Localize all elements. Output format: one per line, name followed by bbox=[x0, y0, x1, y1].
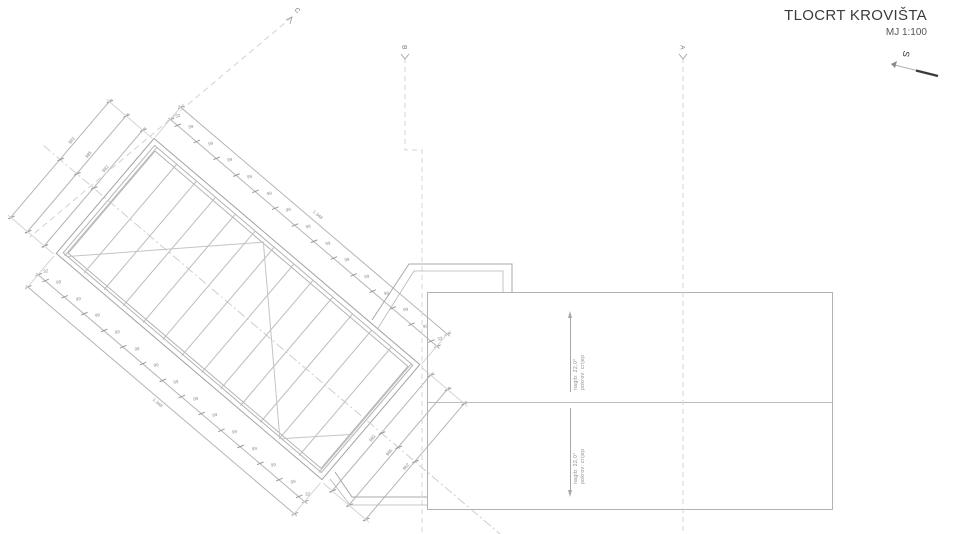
dim-seg-label: 99 bbox=[344, 257, 350, 262]
dim-tick-icon bbox=[35, 273, 42, 277]
dim-tick-icon bbox=[198, 411, 205, 415]
dim-tick-icon bbox=[349, 272, 356, 276]
dim-seg-label: 99 bbox=[114, 330, 120, 335]
dim-tick-icon bbox=[346, 503, 353, 507]
dim-seg-label: 32 bbox=[42, 269, 48, 274]
witness-line bbox=[25, 255, 54, 289]
witness-line bbox=[106, 98, 152, 138]
section-label-b: B bbox=[400, 45, 407, 49]
dim-seg-label: 99 bbox=[207, 141, 213, 146]
dim-tick-icon bbox=[178, 105, 185, 109]
dim-tick-icon bbox=[41, 244, 48, 248]
dim-tick-icon bbox=[237, 444, 244, 448]
dim-tick-icon bbox=[158, 378, 165, 382]
section-label-a: A bbox=[678, 45, 685, 49]
dim-tick-icon bbox=[139, 361, 146, 365]
dim-seg-label: 99 bbox=[305, 224, 311, 229]
dim-tick-icon bbox=[106, 100, 113, 104]
page-title: TLOCRT KROVIŠTA bbox=[784, 7, 927, 24]
dim-tick-icon bbox=[61, 295, 68, 299]
rotated-roof-outline: 3299999999999999999999999999321.34832999… bbox=[55, 137, 420, 480]
dim-tick-icon bbox=[363, 517, 370, 521]
dim-tick-icon bbox=[252, 189, 259, 193]
section-b-arrow-icon bbox=[401, 54, 409, 59]
section-a-arrow-icon bbox=[679, 54, 687, 59]
dim-tick-icon bbox=[295, 494, 302, 498]
dim-tick-icon bbox=[80, 311, 87, 315]
dim-tick-icon bbox=[217, 428, 224, 432]
dim-tick-icon bbox=[291, 223, 298, 227]
dim-seg-label: 99 bbox=[188, 124, 194, 129]
dim-seg-label: 99 bbox=[227, 158, 233, 163]
dim-tick-icon bbox=[25, 285, 32, 289]
dim-tick-icon bbox=[256, 461, 263, 465]
end-dim-label: 962 bbox=[68, 136, 76, 145]
dim-tick-icon bbox=[193, 139, 200, 143]
dim-tick-icon bbox=[213, 156, 220, 160]
dim-seg-label: 99 bbox=[270, 463, 276, 468]
right-roof-ridge-line bbox=[428, 402, 832, 403]
dim-seg-label: 99 bbox=[231, 429, 237, 434]
dim-seg-label: 99 bbox=[383, 291, 389, 296]
dim-tick-icon bbox=[291, 512, 298, 516]
end-dim-label: 985 bbox=[385, 448, 393, 457]
dim-seg-label: 32 bbox=[304, 492, 310, 497]
dim-seg-label: 99 bbox=[212, 413, 218, 418]
dim-tick-icon bbox=[119, 345, 126, 349]
dim-seg-label: 99 bbox=[55, 280, 61, 285]
dim-tick-icon bbox=[330, 256, 337, 260]
slope-arrow-up-icon bbox=[568, 311, 572, 318]
bottom-connector-inner bbox=[330, 479, 427, 505]
north-arrow-head-icon bbox=[891, 61, 897, 68]
dim-tick-icon bbox=[301, 500, 308, 504]
bottom-connector-outer bbox=[335, 472, 427, 497]
dim-tick-icon bbox=[388, 306, 395, 310]
right-roof-outline bbox=[427, 292, 833, 510]
witness-line bbox=[291, 482, 320, 516]
section-c-arrow-icon bbox=[286, 17, 292, 24]
dim-tick-icon bbox=[173, 123, 180, 127]
dim-seg-label: 99 bbox=[251, 446, 257, 451]
section-label-c: C bbox=[292, 7, 300, 15]
dim-seg-label: 99 bbox=[285, 208, 291, 213]
dim-tick-icon bbox=[178, 394, 185, 398]
dim-tick-icon bbox=[408, 322, 415, 326]
dim-total-label: 1.348 bbox=[151, 398, 162, 409]
dim-seg-label: 99 bbox=[403, 307, 409, 312]
dim-tick-icon bbox=[123, 114, 130, 118]
slope-arrow-shaft bbox=[570, 318, 571, 392]
dim-seg-label: 99 bbox=[266, 191, 272, 196]
end-dim-label: 982 bbox=[368, 434, 376, 443]
north-arrow-thick bbox=[916, 71, 938, 77]
slope-arrow-down-icon bbox=[568, 490, 572, 497]
dim-tick-icon bbox=[276, 478, 283, 482]
witness-line bbox=[323, 483, 369, 523]
end-dim-label: 962 bbox=[402, 462, 410, 471]
dim-seg-label: 99 bbox=[134, 346, 140, 351]
dim-tick-icon bbox=[24, 230, 31, 234]
cover-label: pokrov: crijep bbox=[579, 414, 587, 484]
dim-seg-label: 99 bbox=[290, 479, 296, 484]
dim-seg-label: 99 bbox=[173, 379, 179, 384]
dim-tick-icon bbox=[8, 215, 15, 219]
dim-seg-label: 99 bbox=[192, 396, 198, 401]
dim-seg-label: 99 bbox=[75, 296, 81, 301]
dim-seg-label: 99 bbox=[324, 241, 330, 246]
dim-tick-icon bbox=[140, 128, 147, 132]
roof-plan-drawing: 3299999999999999999999999999321.34832999… bbox=[0, 0, 960, 534]
dim-seg-label: 99 bbox=[246, 174, 252, 179]
dim-tick-icon bbox=[310, 239, 317, 243]
scale-label: MJ 1:100 bbox=[886, 27, 927, 38]
north-label: S bbox=[901, 50, 912, 58]
cover-label: pokrov: crijep bbox=[579, 320, 587, 390]
witness-line bbox=[7, 214, 53, 254]
north-arrow-line bbox=[891, 64, 938, 76]
dim-tick-icon bbox=[369, 289, 376, 293]
witness-line bbox=[154, 103, 183, 137]
dim-seg-label: 99 bbox=[95, 313, 101, 318]
dim-tick-icon bbox=[271, 206, 278, 210]
dim-tick-icon bbox=[232, 173, 239, 177]
dim-tick-icon bbox=[41, 278, 48, 282]
dim-tick-icon bbox=[100, 328, 107, 332]
dim-seg-label: 99 bbox=[153, 363, 159, 368]
dim-total-label: 1.348 bbox=[311, 209, 322, 220]
dim-tick-icon bbox=[329, 489, 336, 493]
end-dim-label: 982 bbox=[101, 164, 109, 173]
dim-seg-label: 99 bbox=[363, 274, 369, 279]
slope-arrow-shaft bbox=[570, 408, 571, 490]
dim-tick-icon bbox=[167, 117, 174, 121]
dim-seg-label: 32 bbox=[175, 113, 181, 118]
end-dim-label: 985 bbox=[84, 150, 92, 159]
